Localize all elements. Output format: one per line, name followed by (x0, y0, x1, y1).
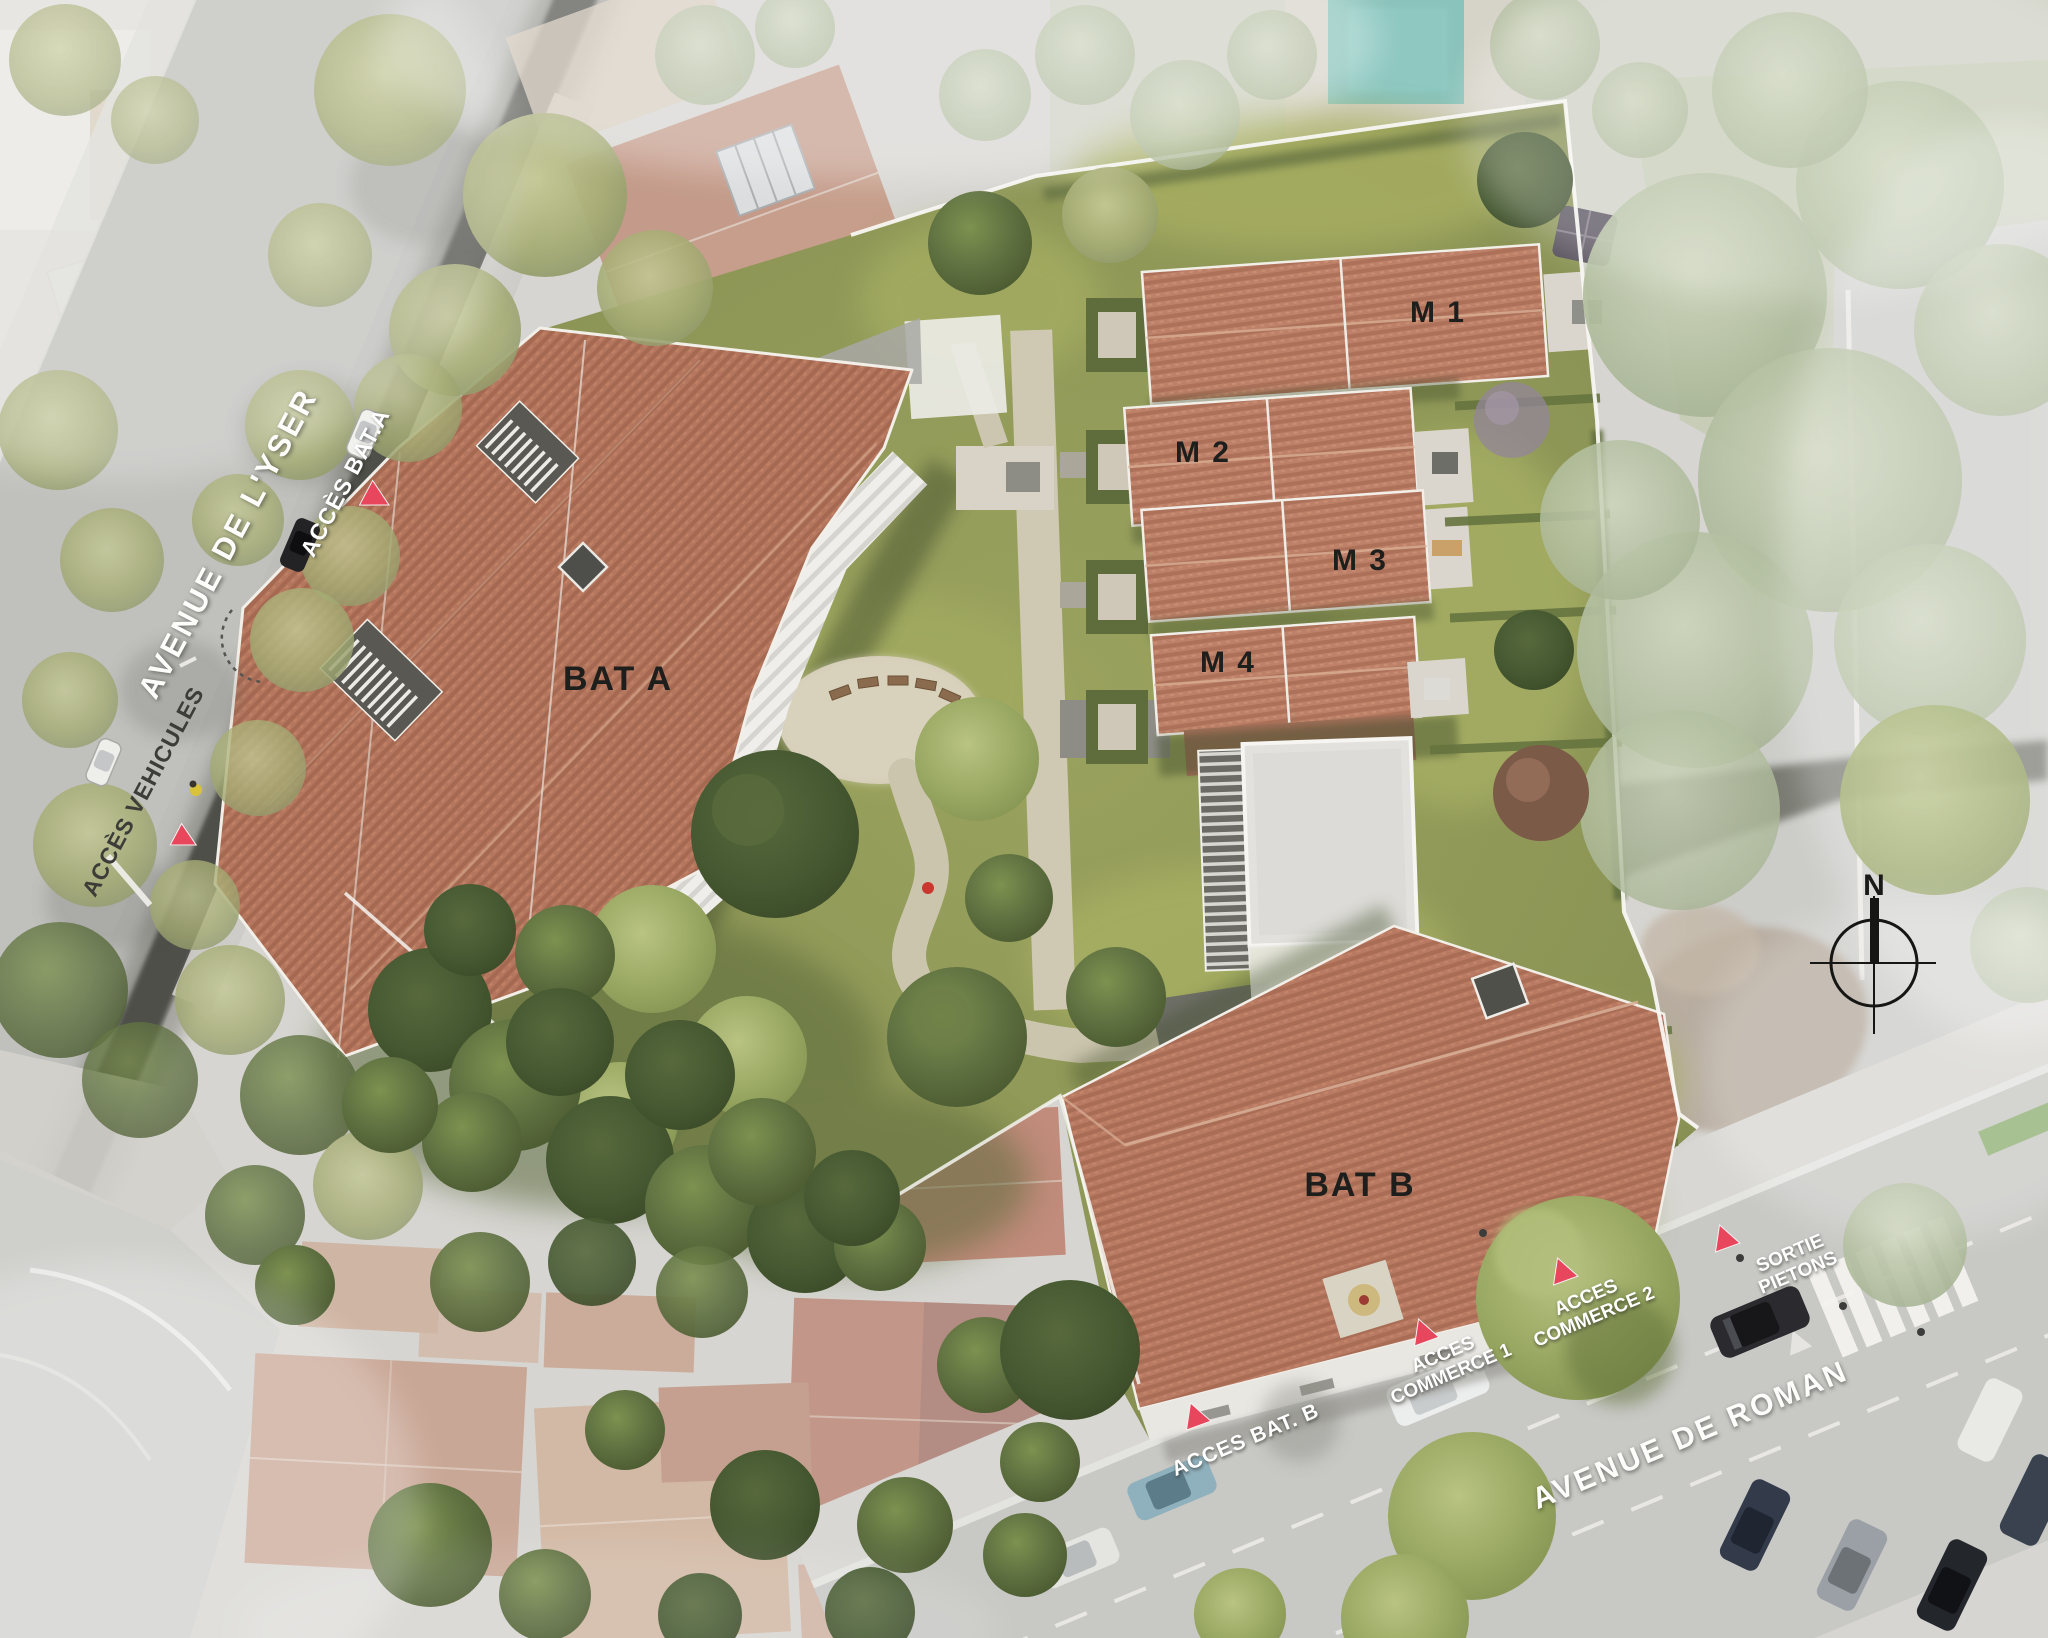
svg-text:M 3: M 3 (1332, 544, 1388, 577)
svg-text:M 4: M 4 (1200, 646, 1256, 679)
svg-text:M 2: M 2 (1175, 436, 1231, 469)
svg-text:N: N (1863, 869, 1885, 902)
svg-text:M 1: M 1 (1410, 296, 1466, 329)
svg-text:BAT B: BAT B (1304, 1166, 1415, 1204)
svg-text:BAT A: BAT A (563, 660, 673, 698)
